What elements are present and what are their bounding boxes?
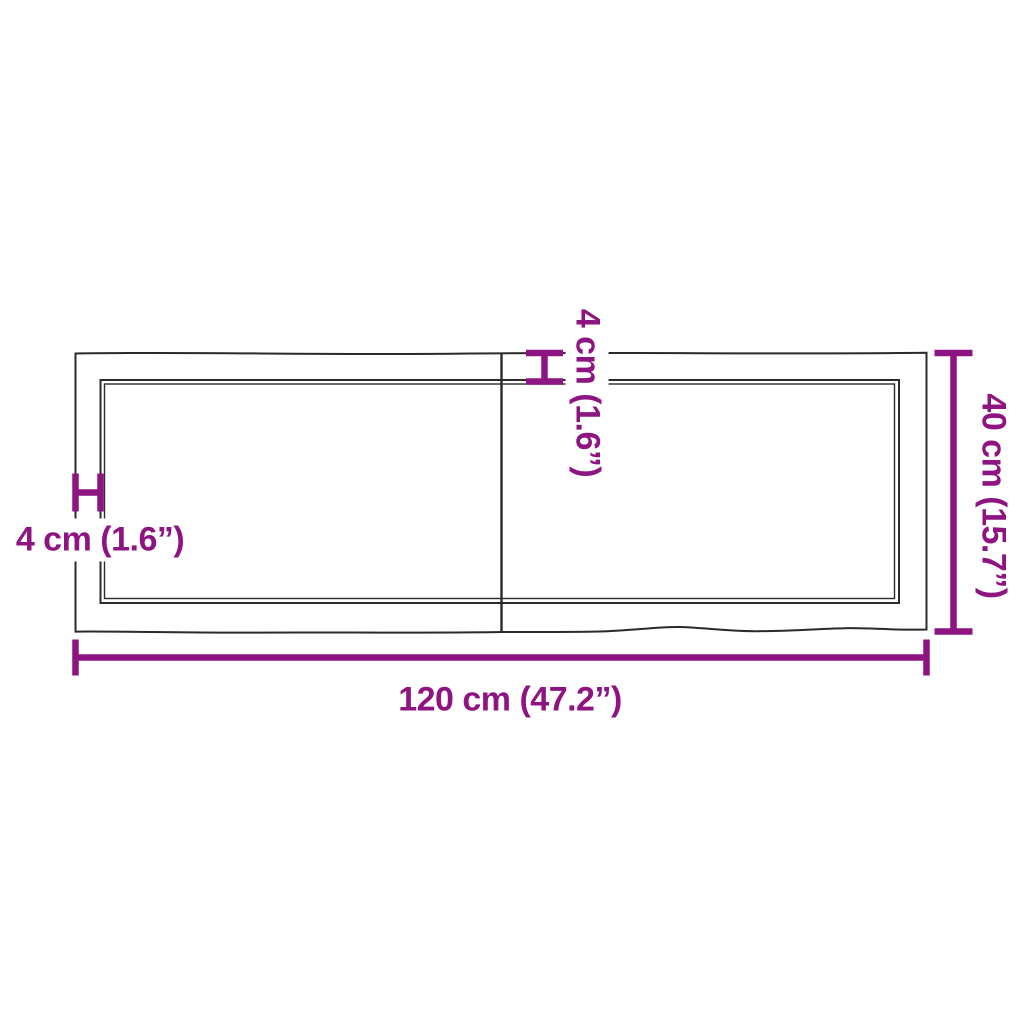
dim-label-top-inset: 4 cm (1.6”)	[565, 303, 608, 483]
top-inset-marker	[526, 351, 563, 385]
diagram-linework	[0, 0, 1024, 1024]
depth-dimension-line	[935, 350, 973, 635]
left-inset-marker	[73, 474, 103, 512]
panel-inner-edge	[101, 380, 900, 603]
panel-inner-edge-second-line	[105, 384, 895, 599]
dim-label-width: 120 cm (47.2”)	[392, 678, 628, 721]
width-dimension-line	[73, 640, 930, 676]
dimension-diagram: 4 cm (1.6”) 4 cm (1.6”) 40 cm (15.7”) 12…	[0, 0, 1024, 1024]
dim-label-depth: 40 cm (15.7”)	[971, 387, 1014, 604]
dim-label-left-inset: 4 cm (1.6”)	[10, 518, 190, 561]
